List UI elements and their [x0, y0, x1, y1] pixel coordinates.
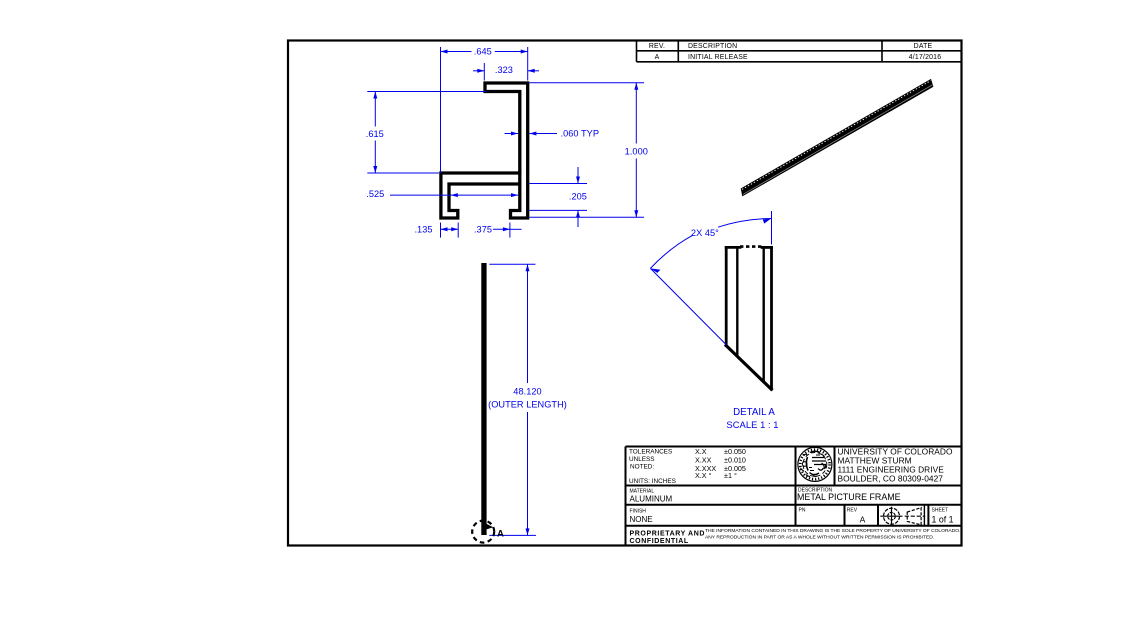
svg-text:2X 45°: 2X 45° [691, 228, 719, 238]
svg-text:.060 TYP: .060 TYP [561, 129, 600, 139]
svg-text:NONE: NONE [630, 515, 653, 524]
svg-text:A: A [860, 515, 866, 525]
svg-text:SCALE 1 : 1: SCALE 1 : 1 [726, 419, 778, 430]
svg-text:BOULDER, CO 80309-0427: BOULDER, CO 80309-0427 [838, 473, 944, 483]
svg-text:TOLERANCES: TOLERANCES [629, 449, 672, 456]
svg-text:X.X °: X.X ° [695, 471, 712, 480]
svg-text:NOTED:: NOTED: [630, 464, 654, 471]
svg-text:INITIAL RELEASE: INITIAL RELEASE [688, 54, 748, 61]
svg-text:1.000: 1.000 [625, 146, 648, 156]
svg-text:THE INFORMATION CONTAINED IN T: THE INFORMATION CONTAINED IN THIS DRAWIN… [705, 528, 960, 534]
svg-text:ALUMINUM: ALUMINUM [630, 495, 673, 504]
svg-text:DESCRIPTION: DESCRIPTION [688, 43, 737, 50]
svg-text:REV.: REV. [649, 43, 665, 50]
svg-text:.375: .375 [474, 224, 492, 234]
svg-text:FINISH: FINISH [630, 509, 647, 515]
svg-text:(OUTER LENGTH): (OUTER LENGTH) [488, 400, 567, 410]
svg-text:DATE: DATE [914, 43, 933, 50]
svg-text:UNLESS: UNLESS [629, 456, 655, 463]
svg-text:.645: .645 [474, 47, 492, 57]
svg-text:A: A [655, 54, 660, 61]
svg-text:.615: .615 [366, 129, 384, 139]
svg-text:SHEET: SHEET [932, 508, 949, 514]
svg-text:CONFIDENTIAL: CONFIDENTIAL [630, 538, 689, 545]
svg-text:4/17/2016: 4/17/2016 [909, 54, 941, 61]
svg-text:.525: .525 [366, 189, 384, 199]
svg-text:.135: .135 [414, 224, 432, 234]
svg-text:DETAIL A: DETAIL A [733, 407, 775, 418]
svg-text:REV: REV [847, 508, 858, 514]
svg-text:PROPRIETARY AND: PROPRIETARY AND [630, 530, 706, 537]
svg-text:.205: .205 [569, 191, 587, 201]
svg-text:ANY REPRODUCTION IN PART OR AS: ANY REPRODUCTION IN PART OR AS A WHOLE W… [705, 535, 934, 541]
svg-text:1 of 1: 1 of 1 [932, 515, 954, 525]
svg-text:UNITS: INCHES: UNITS: INCHES [629, 478, 676, 485]
svg-text:PN: PN [799, 508, 806, 514]
svg-text:METAL PICTURE FRAME: METAL PICTURE FRAME [797, 492, 901, 502]
svg-text:±1 °: ±1 ° [724, 471, 737, 480]
svg-text:.323: .323 [495, 65, 513, 75]
svg-text:48.120: 48.120 [513, 387, 541, 397]
svg-text:A: A [497, 529, 504, 540]
